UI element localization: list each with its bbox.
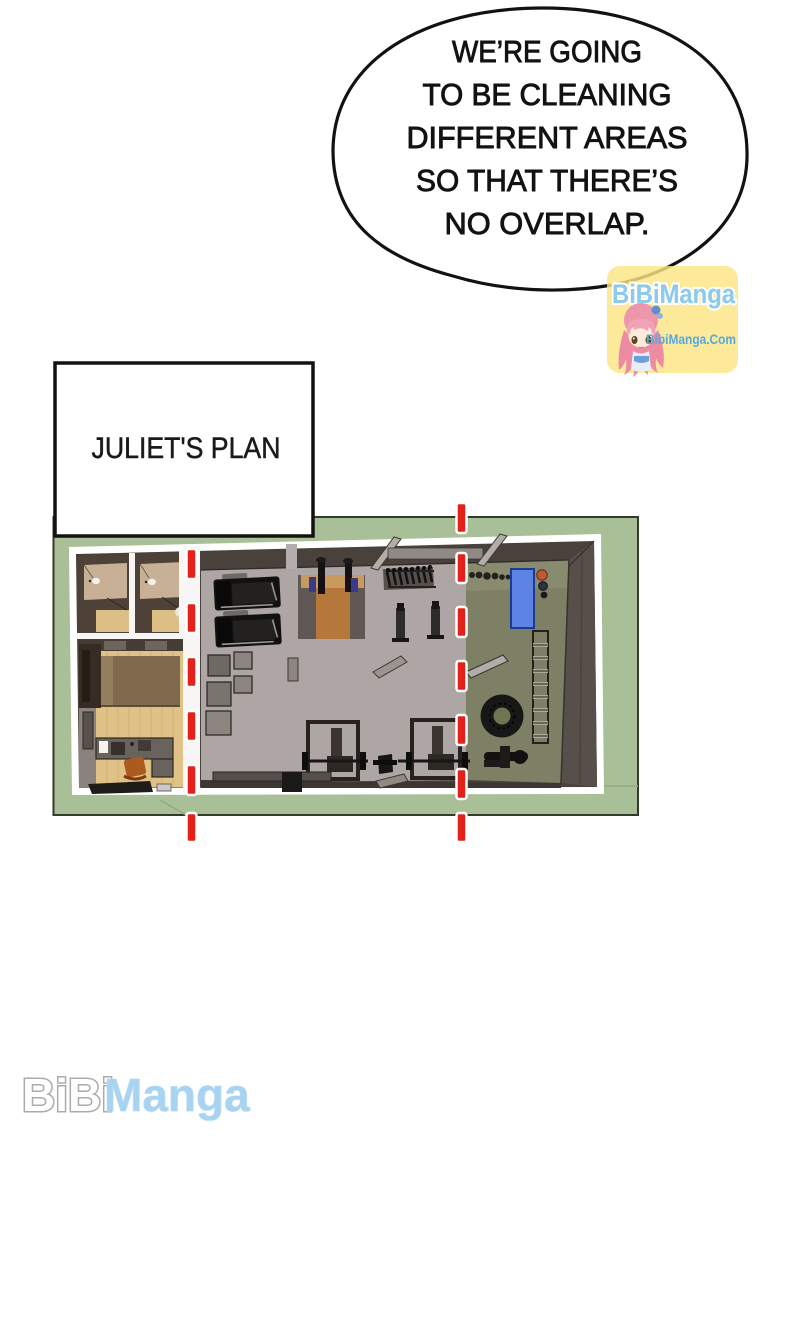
- svg-text:WE’RE GOING: WE’RE GOING: [452, 34, 642, 69]
- svg-text:DIFFERENT AREAS: DIFFERENT AREAS: [407, 120, 688, 155]
- svg-text:Manga: Manga: [104, 1069, 250, 1121]
- svg-text:SO THAT THERE’S: SO THAT THERE’S: [416, 163, 678, 198]
- svg-text:JULIET'S PLAN: JULIET'S PLAN: [92, 432, 281, 465]
- svg-text:BiBiManga: BiBiManga: [612, 279, 736, 309]
- svg-text:BibiManga.Com: BibiManga.Com: [646, 332, 736, 347]
- svg-text:BiBi: BiBi: [22, 1069, 114, 1121]
- svg-text:NO OVERLAP.: NO OVERLAP.: [445, 206, 650, 241]
- svg-text:TO BE CLEANING: TO BE CLEANING: [423, 77, 672, 112]
